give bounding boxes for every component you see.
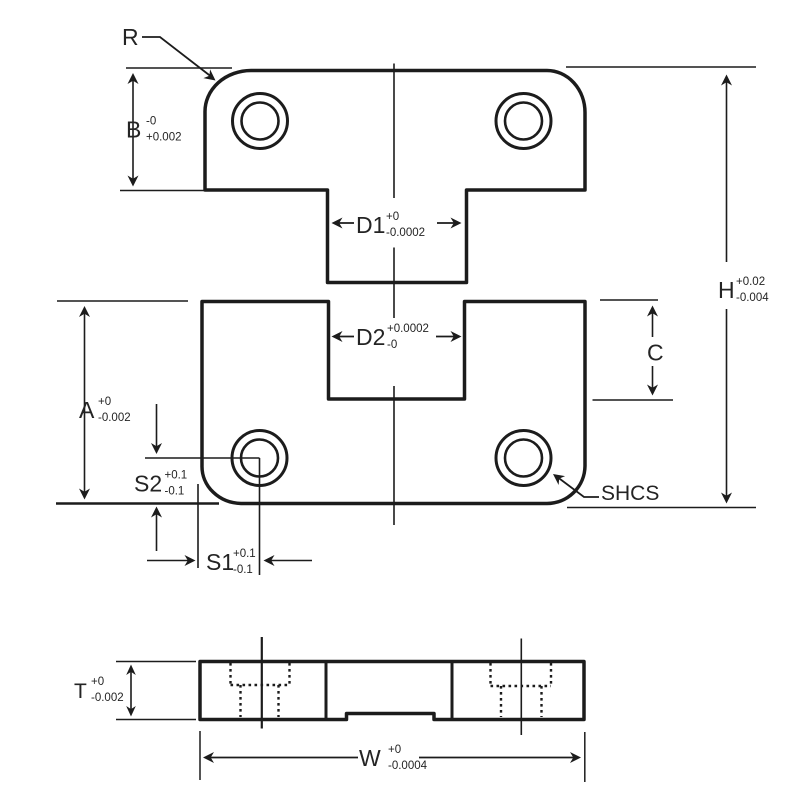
- svg-text:T: T: [74, 680, 87, 703]
- svg-text:+0: +0: [91, 676, 104, 688]
- svg-text:SHCS: SHCS: [601, 482, 659, 505]
- svg-text:-0.002: -0.002: [91, 692, 124, 704]
- svg-text:R: R: [122, 24, 139, 50]
- svg-text:S1: S1: [206, 549, 234, 575]
- svg-text:-0.0004: -0.0004: [388, 760, 428, 772]
- svg-text:H: H: [718, 277, 735, 303]
- svg-text:+0.002: +0.002: [146, 132, 182, 144]
- svg-text:S2: S2: [134, 471, 162, 497]
- svg-text:-0: -0: [387, 339, 397, 351]
- svg-text:-0: -0: [146, 116, 156, 128]
- svg-text:+0.1: +0.1: [233, 548, 256, 560]
- svg-text:-0.1: -0.1: [233, 564, 253, 576]
- svg-text:+0: +0: [388, 744, 401, 756]
- svg-text:A: A: [79, 397, 95, 423]
- svg-text:+0.1: +0.1: [165, 470, 188, 482]
- svg-text:+0: +0: [386, 211, 399, 223]
- svg-text:-0.0002: -0.0002: [386, 227, 425, 239]
- svg-text:-0.1: -0.1: [165, 486, 185, 498]
- svg-text:+0.0002: +0.0002: [387, 323, 429, 335]
- svg-text:-0.004: -0.004: [736, 292, 769, 304]
- svg-text:+0.02: +0.02: [736, 276, 765, 288]
- svg-text:D1: D1: [356, 212, 385, 238]
- svg-text:W: W: [359, 745, 381, 771]
- svg-text:C: C: [647, 340, 664, 366]
- svg-text:B: B: [126, 117, 141, 143]
- svg-text:+0: +0: [98, 396, 111, 408]
- svg-text:-0.002: -0.002: [98, 412, 131, 424]
- svg-text:D2: D2: [356, 324, 385, 350]
